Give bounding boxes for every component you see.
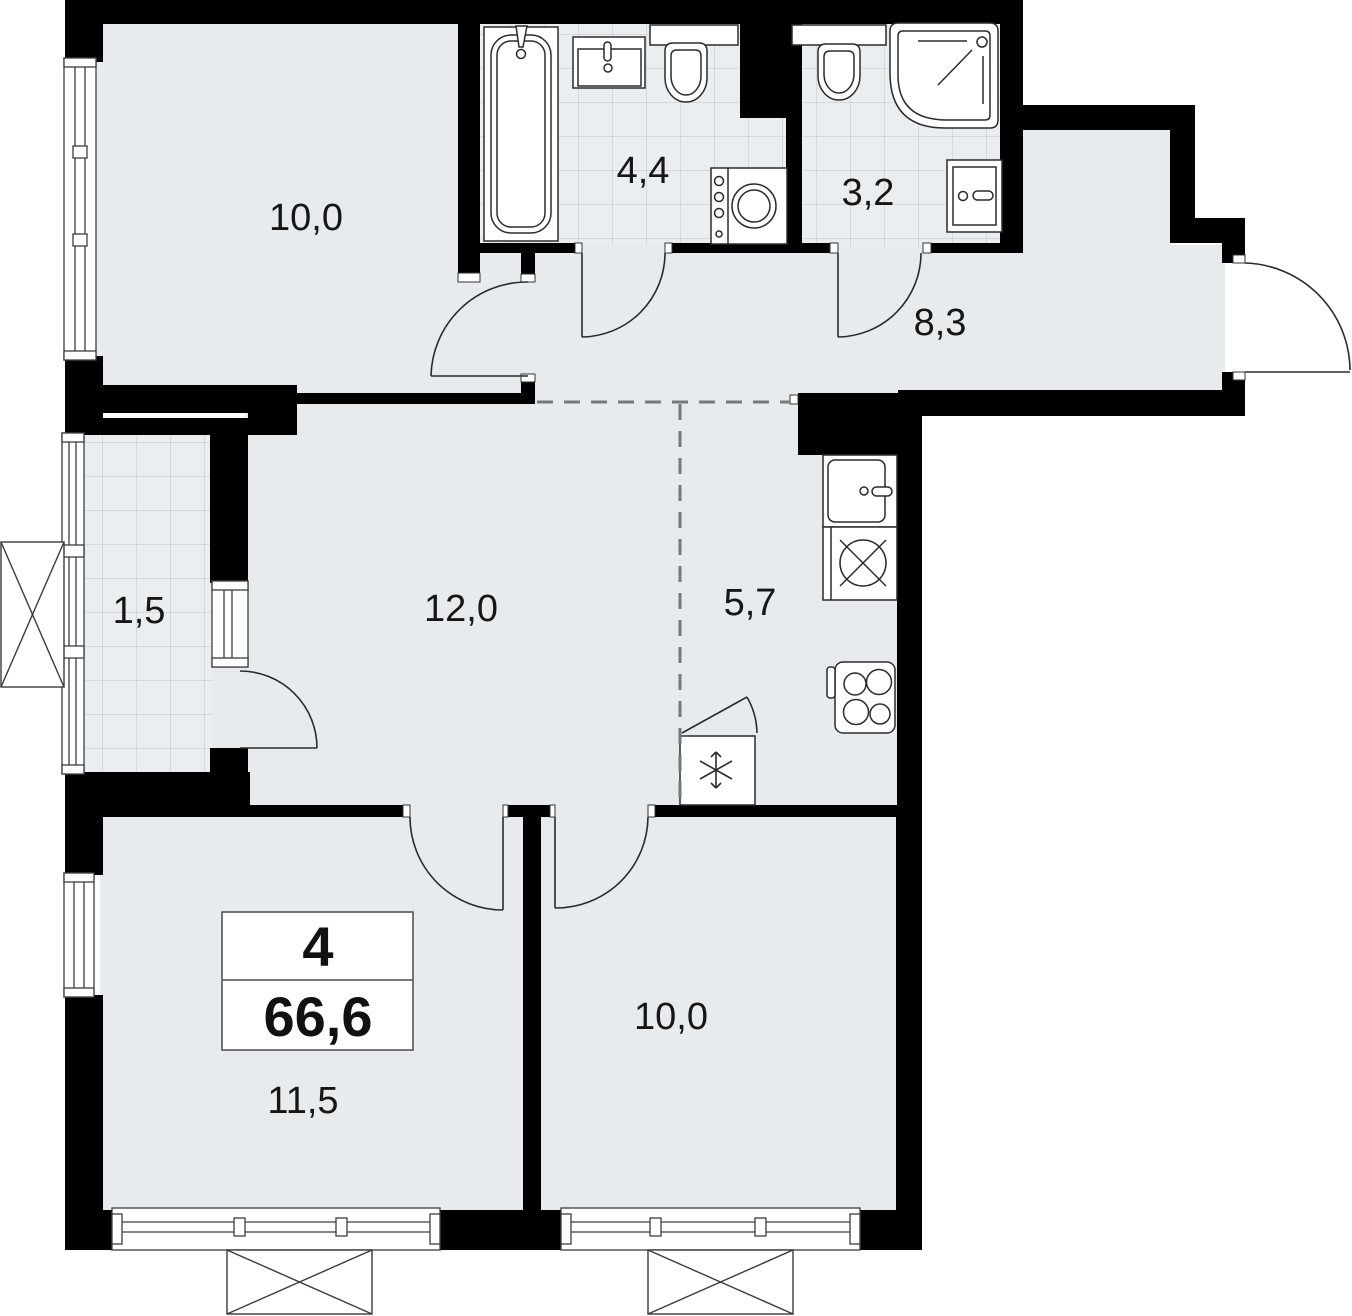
kitchen-sink-icon (823, 455, 897, 527)
info-box: 4 66,6 (222, 912, 413, 1050)
washing-machine-icon (711, 168, 787, 244)
room-area-label-kitchen: 5,7 (724, 582, 777, 624)
washbasin-icon (573, 37, 645, 88)
room-area-label-toilet-shower: 3,2 (842, 172, 895, 214)
room-area-label-living-room: 12,0 (424, 588, 498, 630)
window-bedroom-left-side-icon (64, 873, 94, 997)
ac-unit-icon (1, 542, 64, 687)
door-arc-entrance (1245, 263, 1350, 372)
total-area: 66,6 (264, 985, 373, 1048)
room-area-label-hallway: 8,3 (914, 302, 967, 344)
window-bedroom-left-bottom-icon (112, 1208, 440, 1250)
room-fill-hallway-upper (1020, 125, 1170, 255)
balcony-glazing-icon (62, 433, 84, 774)
window-bedroom-top-icon (64, 58, 96, 360)
floor-plan: 10,0 4,4 3,2 8,3 1,5 12,0 5,7 11,5 10,0 … (0, 0, 1352, 1316)
rooms-count: 4 (302, 915, 333, 978)
room-fill-bedroom-top-nook (440, 250, 532, 402)
room-area-label-bedroom-top: 10,0 (269, 197, 343, 239)
stove-icon (827, 662, 895, 733)
ac-unit-icon (227, 1250, 372, 1314)
fridge-icon (680, 736, 755, 805)
room-fill-balcony-doorway (212, 667, 248, 748)
washbasin-2-icon (947, 160, 1002, 232)
ac-unit-icon (648, 1250, 793, 1314)
room-area-label-bedroom-right: 10,0 (634, 996, 708, 1038)
shower-icon (890, 23, 998, 128)
room-area-label-bedroom-left: 11,5 (267, 1080, 338, 1122)
room-fill-bedroom-right (540, 812, 900, 1215)
room-area-label-balcony: 1,5 (113, 590, 166, 632)
room-area-label-bathroom: 4,4 (617, 150, 670, 192)
window-balcony-living-icon (212, 581, 248, 667)
bathtub-icon (484, 26, 558, 241)
dishwasher-icon (823, 527, 897, 600)
window-bedroom-right-bottom-icon (561, 1208, 860, 1250)
room-fill-hallway (530, 245, 1225, 402)
